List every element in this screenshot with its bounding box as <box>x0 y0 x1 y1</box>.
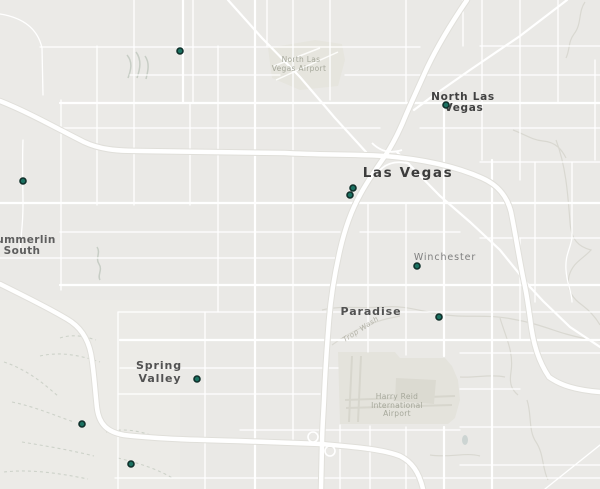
map-marker[interactable] <box>177 48 183 54</box>
label-spring-valley-line1: Spring <box>136 359 182 372</box>
label-paradise: Paradise <box>341 305 402 318</box>
map-marker[interactable] <box>350 185 356 191</box>
label-nlv-airport-line2: Vegas Airport <box>272 64 326 73</box>
map-marker[interactable] <box>414 263 420 269</box>
label-north-las-vegas-line2: Vegas <box>444 102 483 114</box>
label-winchester: Winchester <box>414 252 476 263</box>
map-container: Las Vegas North Las Vegas Winchester Par… <box>0 0 600 489</box>
label-nlv-airport-line1: North Las <box>282 55 321 64</box>
pond <box>462 435 468 445</box>
map-marker[interactable] <box>79 421 85 427</box>
map-canvas[interactable]: Las Vegas North Las Vegas Winchester Par… <box>0 0 600 489</box>
map-marker[interactable] <box>20 178 26 184</box>
label-harry-reid-line1: Harry Reid <box>376 392 418 401</box>
label-las-vegas: Las Vegas <box>363 165 454 181</box>
label-harry-reid-line3: Airport <box>383 409 411 418</box>
label-summerlin-south-line2: South <box>4 245 41 257</box>
map-marker[interactable] <box>436 314 442 320</box>
map-marker[interactable] <box>443 102 449 108</box>
label-spring-valley-line2: Valley <box>139 372 182 385</box>
map-marker[interactable] <box>128 461 134 467</box>
map-marker[interactable] <box>347 192 353 198</box>
map-marker[interactable] <box>194 376 200 382</box>
